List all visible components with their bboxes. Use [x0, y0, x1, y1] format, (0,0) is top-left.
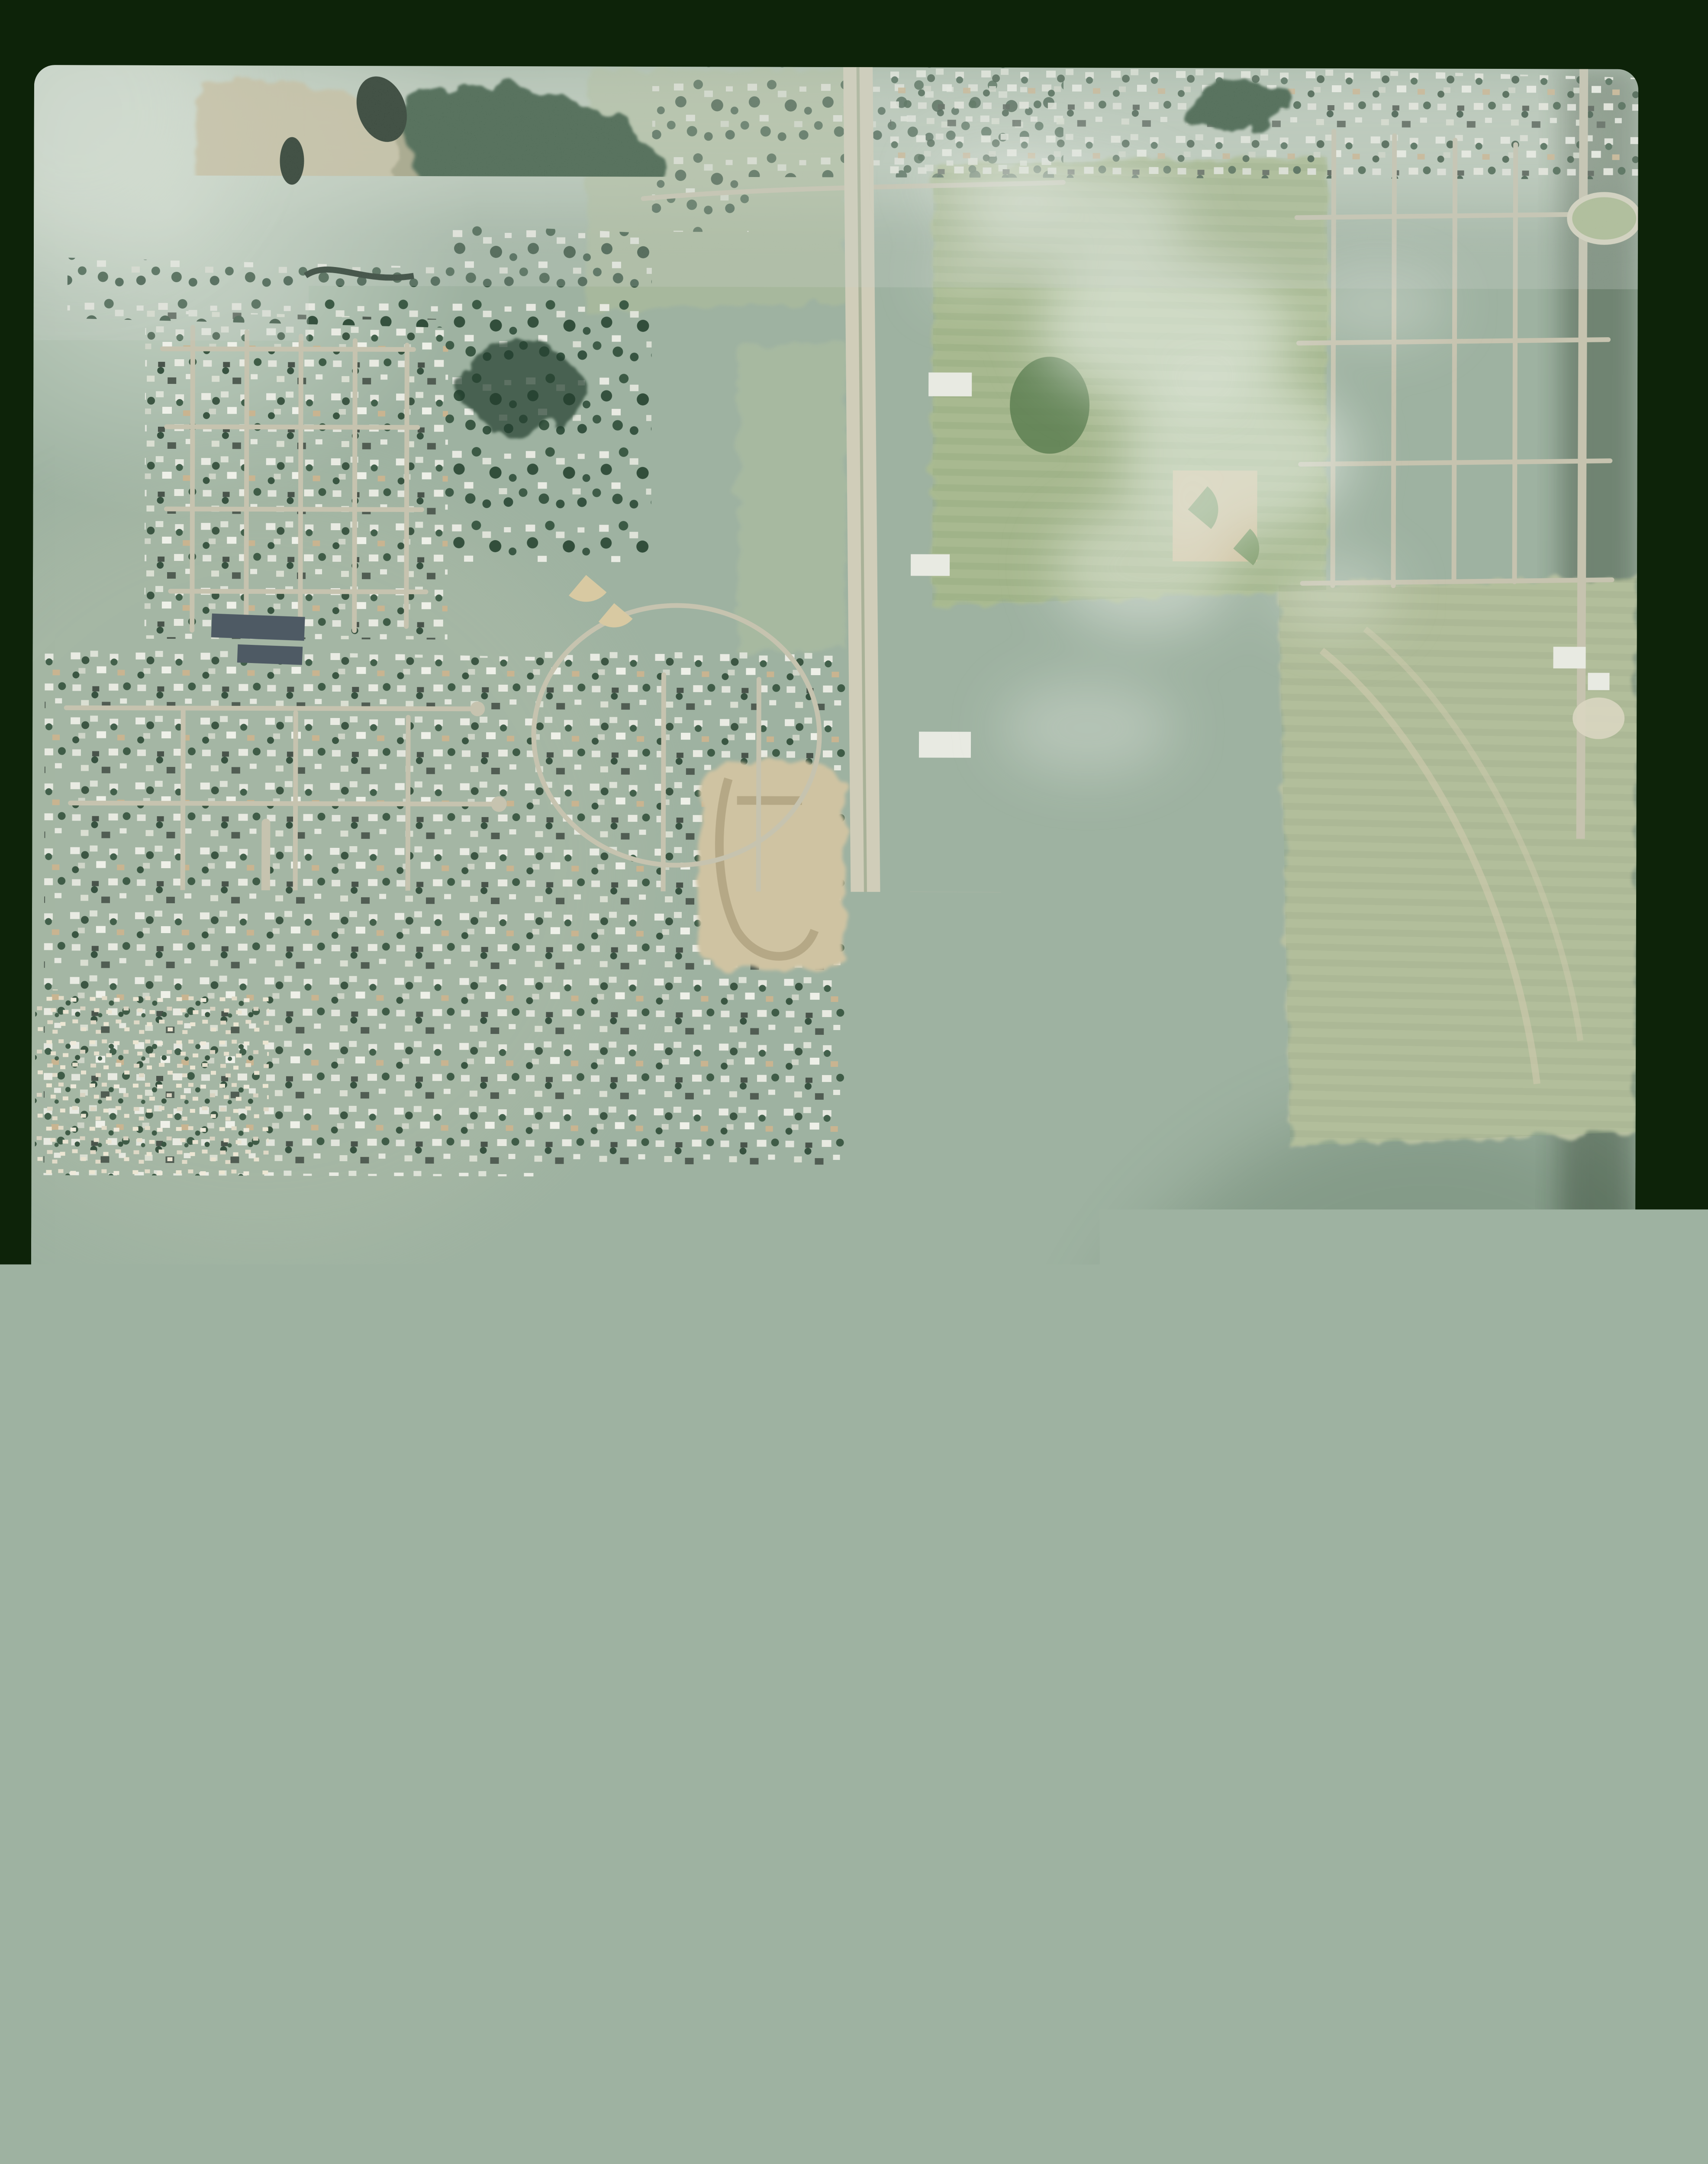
film-grain-overlay [28, 65, 1638, 2164]
aerial-photo [0, 0, 1708, 2164]
scanned-aerial-photo-page [0, 0, 1708, 2164]
aerial-photo-canvas [0, 0, 1708, 2164]
